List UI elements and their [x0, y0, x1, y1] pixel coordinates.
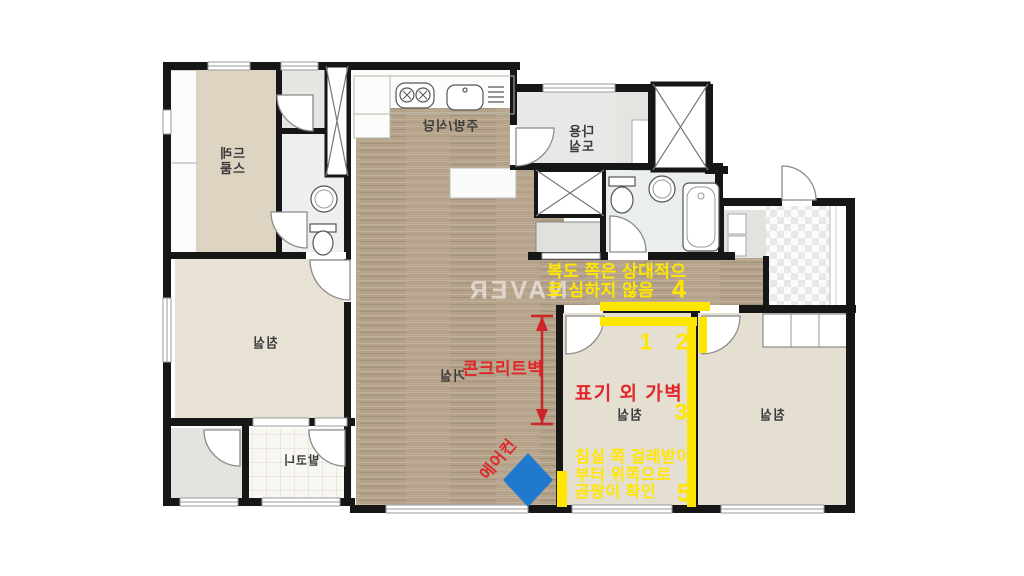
floorplan-page: 드레스룸 주방/식당 다용도실 침실 거실 침실 침실 발코니 NAVER 복도…: [0, 0, 1024, 576]
toilet-left-icon: [313, 231, 333, 255]
hall-closet: [536, 222, 604, 256]
entrance-side-ledge: [830, 204, 848, 312]
note-partition-wall: 표기 외 가벽: [575, 379, 683, 406]
marker-2: 2: [676, 329, 689, 356]
highlight-right-bedroom-stub: [699, 317, 707, 353]
toilet-right-tank: [609, 177, 635, 186]
highlight-bedroom-top-wall: [600, 317, 697, 326]
note-concrete-wall: 콘크리트벽: [463, 355, 544, 380]
label-balcony: 발코니: [283, 454, 319, 469]
label-bedroom-middle: 침실: [616, 408, 642, 423]
label-dress-room: 드레스룸: [219, 146, 245, 176]
note-mold: 침실 쪽 걸레받이 부터 위쪽으로 곰팡이 확인: [575, 449, 691, 502]
label-bedroom-right: 침실: [759, 408, 785, 423]
highlight-left-wall-stub: [557, 471, 567, 507]
room-entrance: [766, 204, 830, 312]
marker-4: 4: [672, 276, 686, 305]
toilet-right-icon: [611, 187, 633, 213]
highlight-corridor-wall: [600, 302, 710, 311]
label-bedroom-left: 침실: [252, 336, 278, 351]
door-entrance: [782, 166, 816, 200]
bedroom-right-closet: [763, 314, 848, 347]
note-corridor: 복도 쪽은 상대적으 로 심하지 않음: [547, 262, 687, 300]
kitchen-left-column: [350, 65, 392, 142]
corridor-cabinet: [450, 168, 516, 198]
label-living-room: 거실: [439, 369, 465, 384]
label-kitchen-dining: 주방/식당: [422, 119, 478, 134]
label-utility-room: 다용도실: [568, 124, 594, 154]
marker-1: 1: [640, 329, 653, 356]
